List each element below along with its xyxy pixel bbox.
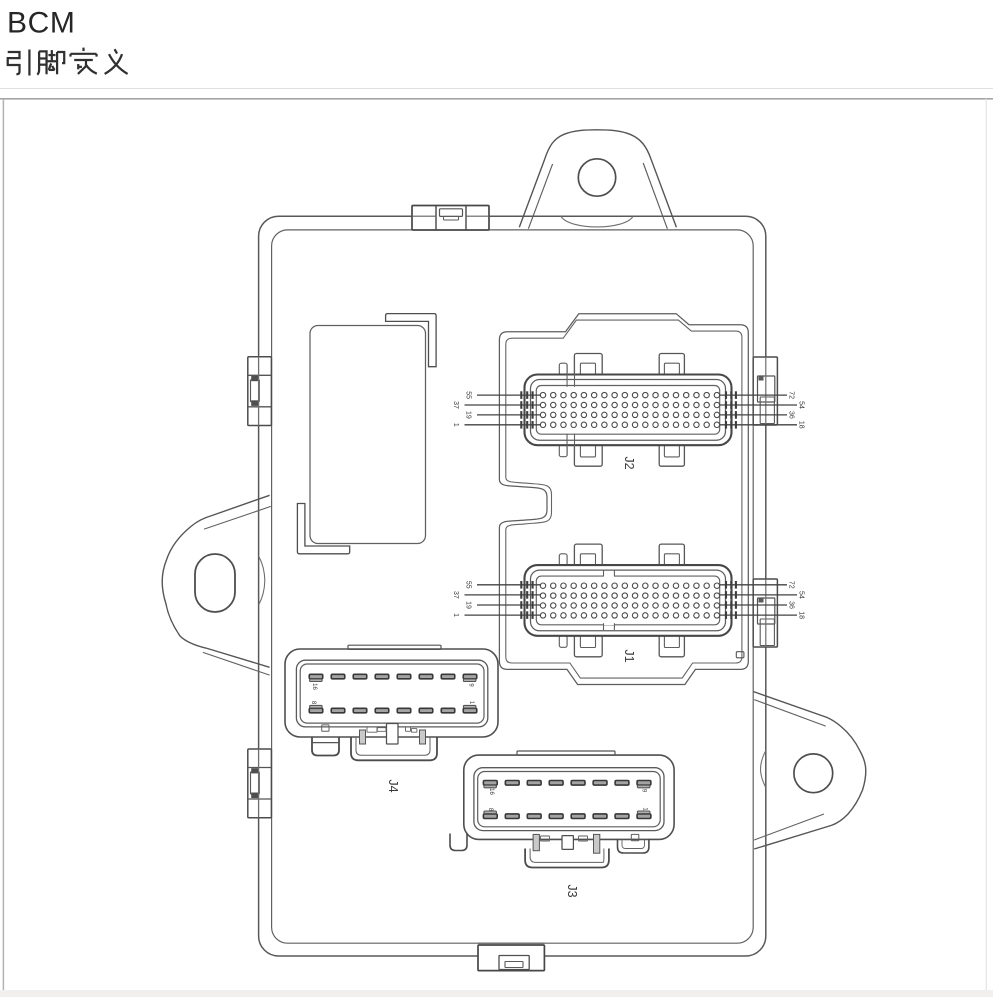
svg-text:16: 16: [311, 683, 317, 690]
svg-text:72: 72: [788, 391, 795, 399]
svg-text:36: 36: [788, 601, 795, 609]
svg-text:37: 37: [452, 591, 459, 599]
svg-text:BCM: BCM: [7, 7, 75, 40]
svg-text:J1: J1: [622, 649, 636, 662]
svg-text:55: 55: [465, 581, 472, 589]
svg-text:J4: J4: [386, 779, 400, 792]
svg-text:1: 1: [452, 613, 459, 617]
svg-text:36: 36: [788, 411, 795, 419]
svg-text:18: 18: [798, 611, 805, 619]
svg-text:J3: J3: [565, 884, 579, 897]
svg-text:1: 1: [452, 423, 459, 427]
svg-text:19: 19: [465, 601, 472, 609]
svg-text:37: 37: [452, 401, 459, 409]
svg-text:18: 18: [798, 421, 805, 429]
svg-text:54: 54: [798, 401, 805, 409]
svg-text:54: 54: [798, 591, 805, 599]
svg-text:J2: J2: [622, 456, 636, 469]
svg-text:16: 16: [488, 788, 494, 795]
svg-text:55: 55: [465, 391, 472, 399]
svg-text:72: 72: [788, 581, 795, 589]
svg-text:19: 19: [465, 411, 472, 419]
